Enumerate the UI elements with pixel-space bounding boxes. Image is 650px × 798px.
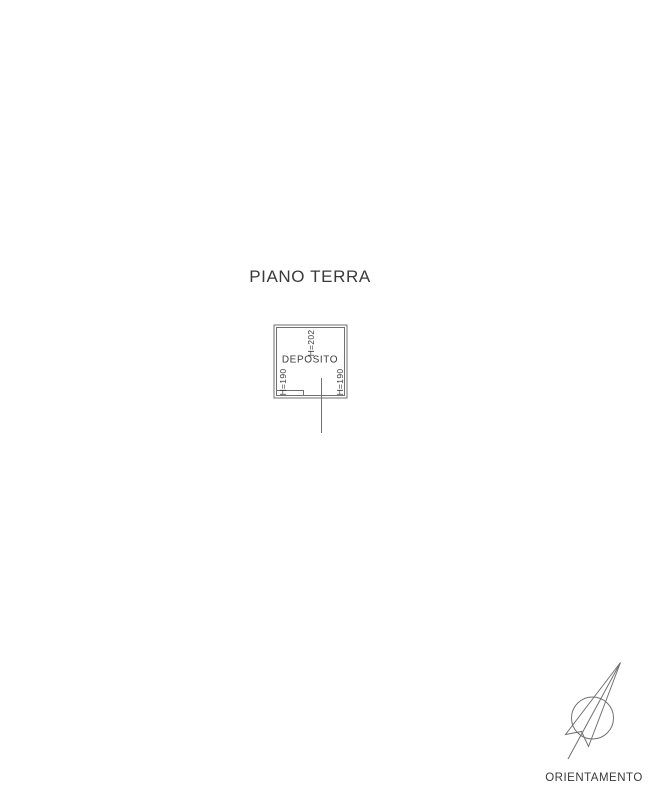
compass <box>566 663 621 760</box>
north-arrow-dart <box>566 663 621 747</box>
floor-plan-page: PIANO TERRA DEPOSITO H=202 H=190 H=190 O… <box>0 0 650 798</box>
ceiling-height-top-label: H=202 <box>306 330 316 357</box>
ceiling-height-right-label: H=190 <box>335 369 345 396</box>
orientation-label: ORIENTAMENTO <box>545 772 643 784</box>
floor-title: PIANO TERRA <box>249 267 371 287</box>
ceiling-height-left-label: H=190 <box>278 369 288 396</box>
floor-plan-drawing <box>0 0 650 798</box>
